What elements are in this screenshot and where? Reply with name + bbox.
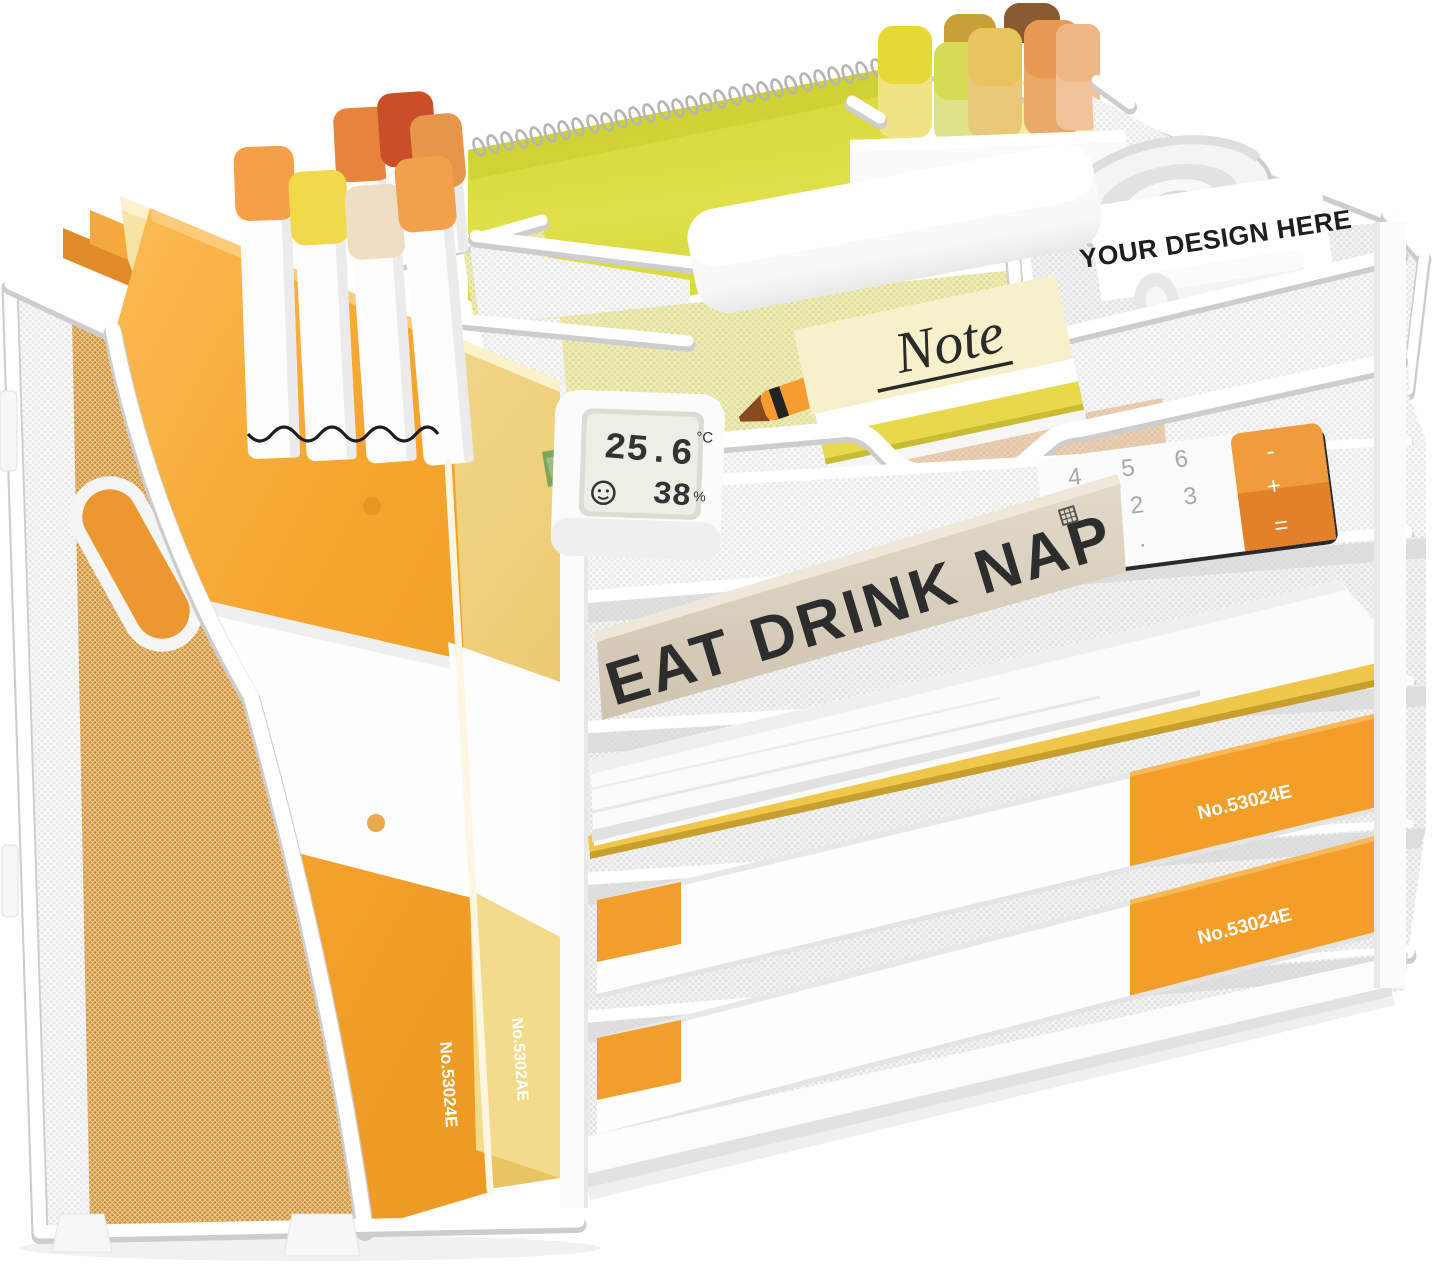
svg-text:%: %: [693, 488, 706, 504]
svg-text:25.6: 25.6: [602, 427, 694, 477]
svg-text:°C: °C: [696, 429, 714, 447]
svg-text:38: 38: [651, 475, 692, 515]
